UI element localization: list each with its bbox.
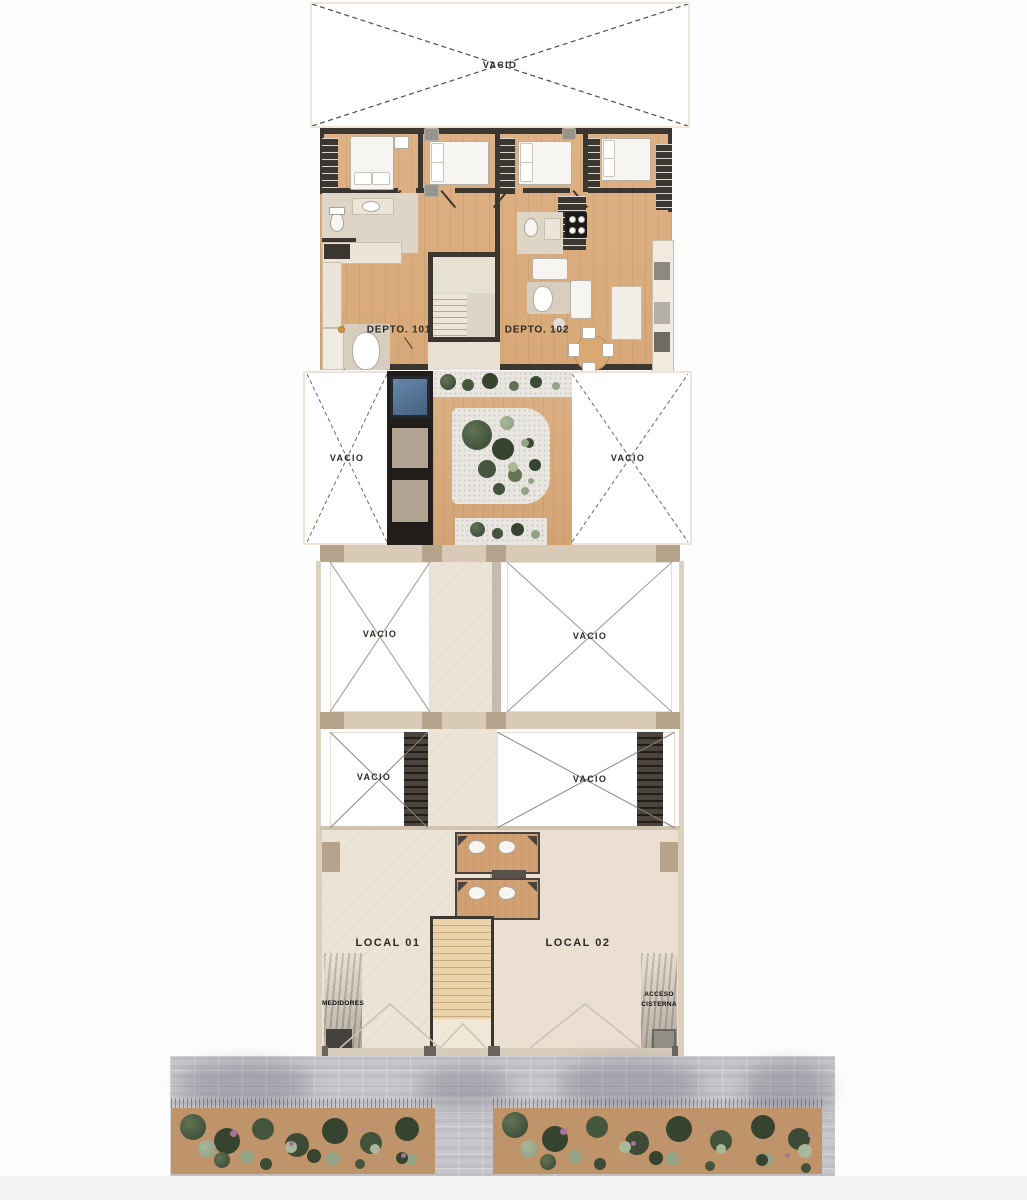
void-label: VACIO bbox=[573, 774, 607, 784]
door-swing-lines bbox=[322, 990, 678, 1050]
architectural-site-plan: VACIO bbox=[0, 0, 1027, 1200]
shrub-cluster bbox=[214, 1152, 230, 1168]
shrub-cluster bbox=[540, 1154, 556, 1170]
street-margin bbox=[0, 1176, 1027, 1200]
void-label: VACIO bbox=[483, 60, 517, 70]
apartment-101-label: DEPTO. 101 bbox=[367, 325, 432, 336]
tree-cluster bbox=[180, 1114, 206, 1140]
flower-accent bbox=[230, 1130, 237, 1137]
void-label: VACIO bbox=[357, 772, 391, 782]
cistern-access-label: ACCESO CISTERNA bbox=[641, 990, 677, 1010]
void-label: VACIO bbox=[330, 453, 364, 463]
local-01-label: LOCAL 01 bbox=[356, 937, 421, 949]
apartment-102-label: DEPTO. 102 bbox=[505, 325, 570, 336]
shrub-cluster bbox=[520, 1140, 538, 1158]
meters-label: MEDIDORES bbox=[322, 999, 364, 1009]
local-02-label: LOCAL 02 bbox=[546, 937, 611, 949]
void-label: VACIO bbox=[363, 629, 397, 639]
cistern-access-line1: ACCESO bbox=[644, 991, 674, 998]
void-label: VACIO bbox=[573, 631, 607, 641]
tree-cluster bbox=[502, 1112, 528, 1138]
shrub-cluster bbox=[198, 1140, 216, 1158]
flower-accent bbox=[560, 1128, 567, 1135]
cistern-access-line2: CISTERNA bbox=[641, 1001, 677, 1008]
void-label: VACIO bbox=[611, 453, 645, 463]
